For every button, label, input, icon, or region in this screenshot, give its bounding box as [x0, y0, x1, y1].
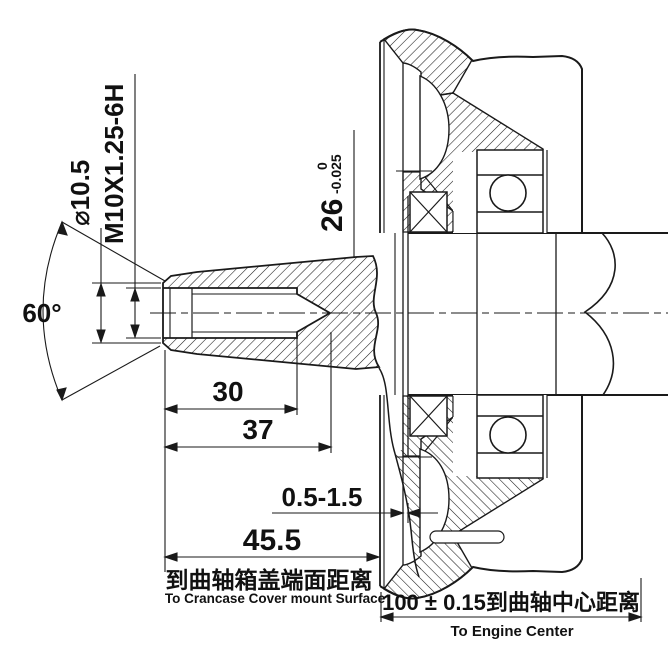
dim-mount-distance: 45.5 到曲轴箱盖端面距离 To Crancase Cover mount S…: [165, 524, 386, 606]
cover-top-gap: [453, 152, 477, 233]
taper-dia-label: 26: [316, 199, 349, 232]
thread-depth-label: 30: [212, 376, 243, 407]
mount-note-en: To Crancase Cover mount Surface: [165, 591, 386, 606]
dim-countersink-angle: 60°: [22, 222, 165, 400]
thread-spec-label: M10X1.25-6H: [99, 84, 129, 244]
crankshaft-journal: [408, 233, 668, 395]
cover-bottom-gap: [453, 395, 477, 476]
engineering-drawing-page: ⌀10.5 M10X1.25-6H 60° 26 0 -0.025: [0, 0, 670, 670]
center-distance-label: 100 ± 0.15到曲轴中心距离: [382, 590, 640, 615]
crankcase-cover-top: [380, 29, 582, 233]
oil-slot: [430, 531, 504, 543]
center-note-en: To Engine Center: [450, 623, 573, 640]
countersink-angle-label: 60°: [22, 298, 61, 328]
bore-depth-label: 37: [242, 414, 273, 445]
gap-label: 0.5-1.5: [282, 482, 363, 512]
mount-distance-label: 45.5: [243, 524, 301, 557]
dim-thread-spec: M10X1.25-6H: [99, 74, 161, 338]
mount-note-cn: 到曲轴箱盖端面距离: [166, 567, 373, 593]
ball-bearing-bottom: [477, 395, 547, 478]
dim-taper-dia: 26 0 -0.025: [314, 130, 354, 257]
taper-dia-tol-lower: -0.025: [328, 154, 344, 194]
bearing-ball-bottom: [490, 417, 526, 453]
crankshaft-section-drawing: ⌀10.5 M10X1.25-6H 60° 26 0 -0.025: [0, 0, 670, 670]
cover-mount-face-lines: [380, 39, 408, 589]
bearing-ball-top: [490, 175, 526, 211]
counterbore-dia-label: ⌀10.5: [65, 160, 95, 226]
ball-bearing-top: [477, 150, 547, 233]
